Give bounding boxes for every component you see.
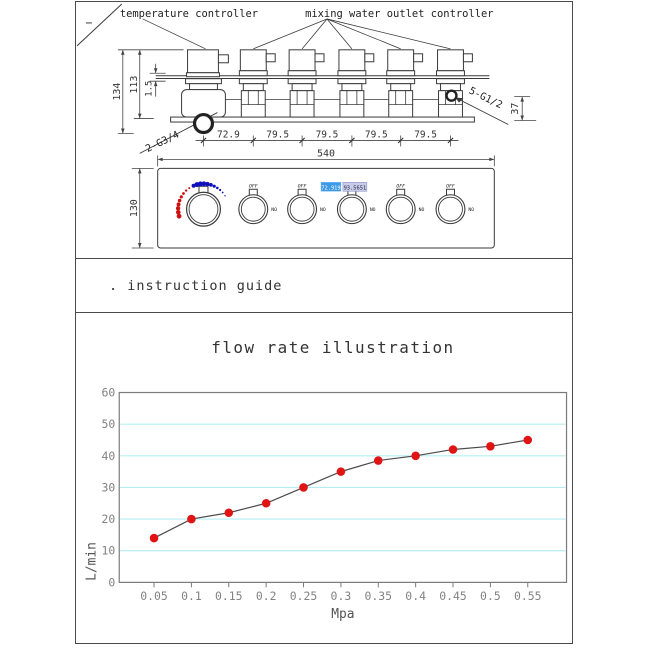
temp-arc-hot-dot — [176, 210, 181, 215]
unit-flange — [338, 71, 366, 76]
knob-off-label: OFF — [298, 183, 307, 189]
dim-spacing-1: 72.9 — [217, 129, 240, 140]
mixing-valve-unit — [288, 50, 324, 117]
knob-face — [389, 197, 413, 221]
unit-flange — [288, 71, 316, 76]
dim-spacing-2: 79.5 — [266, 129, 289, 140]
unit-head — [240, 50, 266, 71]
temp-arc-cold-dot — [222, 192, 224, 194]
unit-neck — [190, 84, 218, 90]
unit-connector — [218, 55, 228, 63]
knob-face — [439, 197, 463, 221]
data-point — [411, 452, 420, 461]
data-point — [299, 483, 308, 492]
knob-face — [340, 197, 364, 221]
knob-face — [290, 197, 314, 221]
x-tick-label: 0.1 — [181, 589, 202, 603]
flow-rate-line — [154, 440, 528, 538]
unit-connector — [315, 54, 324, 62]
knob-off-label: OFF — [396, 183, 405, 189]
data-point — [486, 442, 495, 451]
mixing-valve-unit — [387, 50, 423, 117]
dim-arrowhead — [138, 243, 142, 248]
data-point — [225, 508, 234, 517]
temp-arc-hot-dot — [176, 206, 180, 210]
knob-face — [241, 197, 265, 221]
temp-arc-cold-dot — [213, 185, 216, 188]
data-point — [337, 467, 346, 476]
data-point — [374, 456, 383, 465]
temp-arc-hot-dot — [182, 192, 185, 195]
dim-arrowhead — [138, 50, 142, 55]
port-side-label: 5-G1/2 — [467, 86, 504, 112]
unit-flange — [186, 79, 222, 84]
unit-head — [339, 50, 365, 71]
y-tick-label: 40 — [101, 449, 115, 463]
temp-leader-line — [143, 19, 206, 49]
x-tick-label: 0.15 — [215, 589, 243, 603]
x-tick-label: 0.3 — [331, 589, 352, 603]
y-tick-label: 50 — [101, 417, 115, 431]
dim-total-width: 540 — [317, 148, 335, 159]
unit-flange — [437, 79, 465, 84]
data-point — [150, 534, 159, 543]
y-axis-label: L/min — [84, 542, 99, 581]
dim-spacing-4: 79.5 — [365, 129, 388, 140]
x-axis-label: Mpa — [331, 607, 354, 622]
unit-flange — [387, 79, 415, 84]
mixing-valve-unit — [437, 50, 473, 117]
x-tick-label: 0.35 — [365, 589, 393, 603]
technical-drawing: temperature controller mixing water outl… — [76, 2, 572, 258]
dim-arrowhead — [520, 116, 524, 121]
x-tick-label: 0.5 — [480, 589, 501, 603]
data-point — [449, 445, 458, 454]
dim-panel-height: 130 — [129, 199, 140, 217]
mounting-rail — [171, 117, 475, 122]
y-tick-label: 0 — [108, 575, 115, 589]
x-tick-label: 0.05 — [140, 589, 168, 603]
control-panel: OFFNOOFFNOOFFNOOFFNOOFFNO 172.9199 93.56… — [158, 168, 495, 248]
dim-pipe-offset: 1.5 — [145, 81, 155, 97]
flow-rate-chart: flow rate illustration 01020304050600.05… — [76, 313, 572, 643]
unit-neck — [292, 84, 312, 91]
corner-leader-line — [77, 4, 122, 46]
display-value: 93.5651 — [344, 185, 367, 191]
dim-body-height: 113 — [129, 76, 140, 94]
dim-total-height: 134 — [112, 83, 123, 101]
knob-no-label: NO — [419, 207, 425, 213]
mixing-leader-fan — [253, 19, 450, 49]
knob-face — [189, 195, 218, 224]
x-tick-label: 0.2 — [256, 589, 277, 603]
unit-flange — [239, 71, 267, 76]
unit-flange — [338, 79, 366, 84]
temp-arc-hot-dot — [177, 202, 181, 206]
dim-arrowhead — [520, 97, 524, 102]
y-tick-label: 60 — [101, 385, 115, 399]
dim-arrowhead — [138, 168, 142, 173]
y-tick-label: 10 — [101, 544, 115, 558]
instruction-guide-text: . instruction guide — [76, 278, 282, 294]
unit-base — [340, 91, 364, 117]
unit-base — [389, 91, 413, 117]
chart-title: flow rate illustration — [211, 338, 454, 357]
mixing-valve-unit — [239, 50, 275, 117]
display-value-selected: 172.9199 — [318, 185, 344, 191]
unit-flange — [187, 73, 220, 77]
x-tick-label: 0.4 — [405, 589, 426, 603]
inlet-port-circle — [195, 115, 213, 133]
unit-connector — [463, 54, 472, 62]
data-point — [262, 499, 271, 508]
product-sheet: temperature controller mixing water outl… — [0, 0, 650, 650]
flow-rate-section: flow rate illustration 01020304050600.05… — [75, 312, 573, 644]
temp-arc-cold-dot — [205, 182, 209, 186]
data-point — [187, 515, 196, 524]
unit-neck — [391, 84, 411, 91]
mixing-controller-label: mixing water outlet controller — [305, 8, 494, 20]
unit-head — [438, 50, 464, 71]
temp-arc-hot-dot — [177, 214, 182, 219]
unit-head — [188, 50, 219, 73]
knob-off-label: OFF — [249, 183, 258, 189]
y-tick-label: 30 — [101, 480, 115, 494]
knob-no-label: NO — [468, 207, 474, 213]
knob-off-label: OFF — [446, 183, 455, 189]
dim-spacing-5: 79.5 — [414, 129, 437, 140]
unit-neck — [342, 84, 362, 91]
unit-body — [182, 90, 226, 117]
dim-arrowhead — [138, 114, 142, 119]
temp-arc-cold-dot — [224, 195, 225, 196]
unit-flange — [387, 71, 415, 76]
unit-flange — [288, 79, 316, 84]
unit-base — [290, 91, 314, 117]
x-tick-label: 0.55 — [514, 589, 542, 603]
knob-no-label: NO — [370, 207, 376, 213]
x-tick-label: 0.25 — [290, 589, 318, 603]
mixing-valve-unit — [338, 50, 374, 117]
temp-arc-cold-dot — [209, 183, 213, 187]
temp-arc-hot-dot — [178, 199, 182, 203]
temp-arc-hot-dot — [188, 187, 190, 189]
unit-neck — [243, 84, 263, 91]
dim-arrowhead — [489, 158, 494, 162]
temperature-valve-unit — [182, 50, 229, 117]
dim-spacing-3: 79.5 — [316, 129, 339, 140]
dim-arrowhead — [121, 129, 125, 134]
unit-head — [289, 50, 315, 71]
knob-no-label: NO — [320, 207, 326, 213]
outlet-port-circle — [447, 91, 457, 101]
port-bottom-label: 2-G3/4 — [144, 129, 181, 155]
data-point — [523, 436, 532, 445]
temp-arc-hot-dot — [180, 195, 183, 198]
unit-head — [388, 50, 414, 71]
x-tick-label: 0.45 — [439, 589, 467, 603]
temperature-controller-label: temperature controller — [120, 8, 258, 20]
knob-no-label: NO — [271, 207, 277, 213]
dim-arrowhead — [121, 50, 125, 55]
dim-arrowhead — [158, 158, 163, 162]
technical-drawing-section: temperature controller mixing water outl… — [75, 1, 573, 259]
unit-flange — [437, 71, 465, 76]
y-tick-label: 20 — [101, 512, 115, 526]
temp-arc-hot-dot — [185, 189, 187, 191]
unit-base — [241, 91, 265, 117]
unit-flange — [239, 79, 267, 84]
unit-connector — [266, 54, 275, 62]
temp-arc-cold-dot — [216, 187, 219, 190]
dim-arrowhead — [154, 68, 158, 73]
instruction-guide-section: . instruction guide — [75, 258, 573, 313]
unit-connector — [365, 54, 374, 62]
temp-arc-cold-dot — [219, 189, 221, 191]
unit-connector — [414, 54, 423, 62]
dim-side-depth: 37 — [510, 103, 521, 115]
